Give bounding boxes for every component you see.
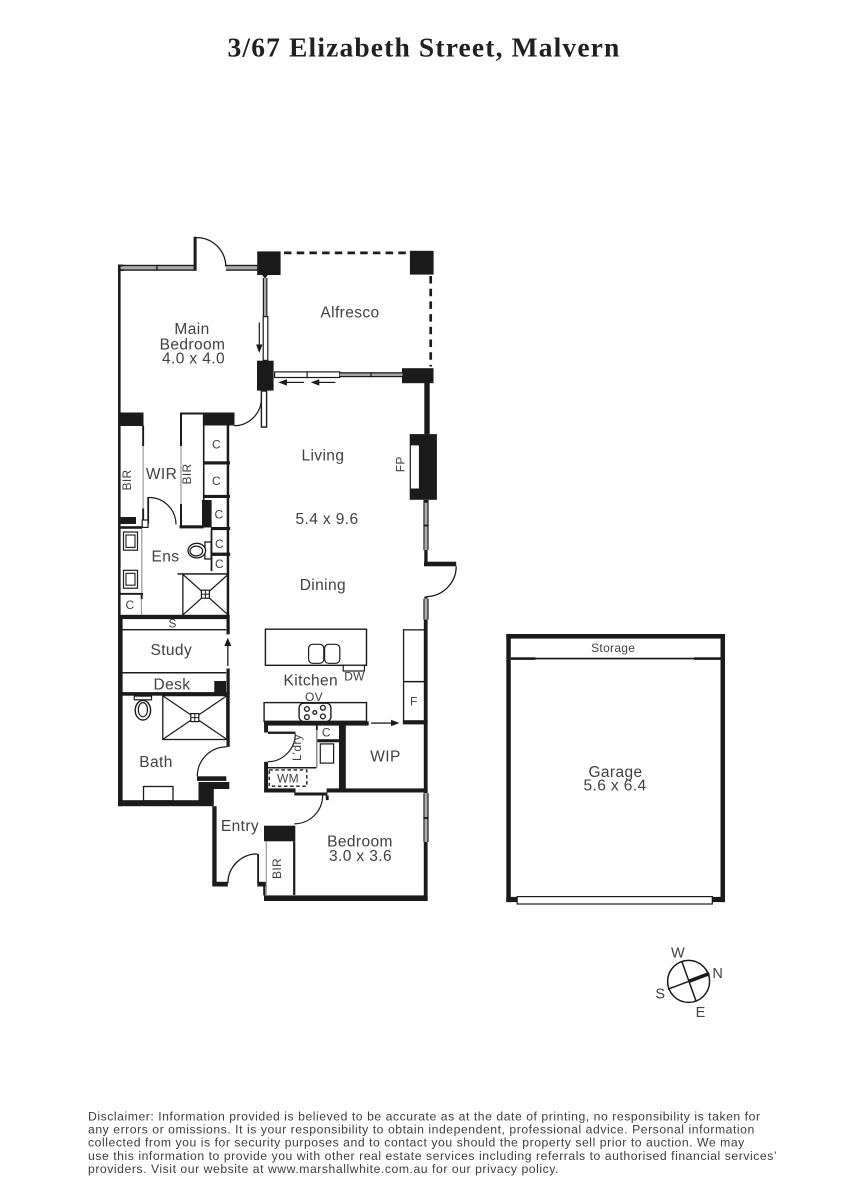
- svg-text:WIR: WIR: [146, 466, 177, 483]
- svg-text:Living: Living: [301, 447, 344, 464]
- svg-text:E: E: [696, 1005, 706, 1021]
- svg-text:DW: DW: [344, 670, 365, 684]
- svg-text:collected from you is for secu: collected from you is for security purpo…: [88, 1136, 745, 1150]
- svg-text:Disclaimer: Information provid: Disclaimer: Information provided is beli…: [88, 1109, 761, 1123]
- svg-text:Dining: Dining: [300, 577, 346, 594]
- svg-text:BIR: BIR: [180, 464, 194, 485]
- svg-text:WIP: WIP: [370, 749, 400, 766]
- svg-text:any errors or omissions. It is: any errors or omissions. It is your resp…: [88, 1123, 755, 1137]
- svg-text:Desk: Desk: [154, 676, 191, 693]
- svg-text:use this information to provid: use this information to provide you with…: [88, 1149, 777, 1163]
- svg-text:Bath: Bath: [139, 754, 173, 771]
- svg-text:C: C: [126, 598, 135, 612]
- svg-text:W: W: [671, 945, 685, 961]
- svg-text:C: C: [322, 726, 331, 740]
- svg-text:F: F: [410, 695, 418, 709]
- svg-text:C: C: [212, 438, 221, 452]
- svg-text:Ens: Ens: [152, 549, 180, 566]
- svg-text:3/67 Elizabeth Street, Malvern: 3/67 Elizabeth Street, Malvern: [228, 32, 621, 63]
- svg-text:Entry: Entry: [221, 818, 259, 835]
- svg-text:S: S: [655, 987, 665, 1003]
- svg-text:5.6 x 6.4: 5.6 x 6.4: [583, 778, 646, 795]
- svg-text:Study: Study: [150, 642, 192, 659]
- svg-text:N: N: [712, 966, 722, 982]
- svg-text:5.4 x 9.6: 5.4 x 9.6: [295, 511, 358, 528]
- svg-text:providers. Visit our website a: providers. Visit our website at www.mars…: [88, 1162, 559, 1176]
- svg-text:C: C: [215, 557, 224, 571]
- svg-text:Main: Main: [174, 321, 209, 338]
- svg-text:L’dry: L’dry: [290, 734, 304, 761]
- svg-text:C: C: [215, 507, 224, 521]
- svg-text:Storage: Storage: [591, 641, 635, 655]
- svg-text:OV: OV: [305, 690, 323, 704]
- svg-text:FP: FP: [394, 456, 408, 472]
- svg-text:C: C: [215, 537, 224, 551]
- svg-text:BIR: BIR: [270, 858, 284, 879]
- svg-text:Alfresco: Alfresco: [320, 305, 379, 322]
- svg-text:S: S: [168, 617, 176, 631]
- svg-text:C: C: [212, 474, 221, 488]
- svg-text:WM: WM: [277, 771, 299, 785]
- svg-text:4.0 x 4.0: 4.0 x 4.0: [162, 351, 225, 368]
- svg-text:BIR: BIR: [120, 470, 134, 491]
- svg-text:Kitchen: Kitchen: [284, 673, 339, 690]
- svg-text:3.0 x 3.6: 3.0 x 3.6: [329, 848, 392, 865]
